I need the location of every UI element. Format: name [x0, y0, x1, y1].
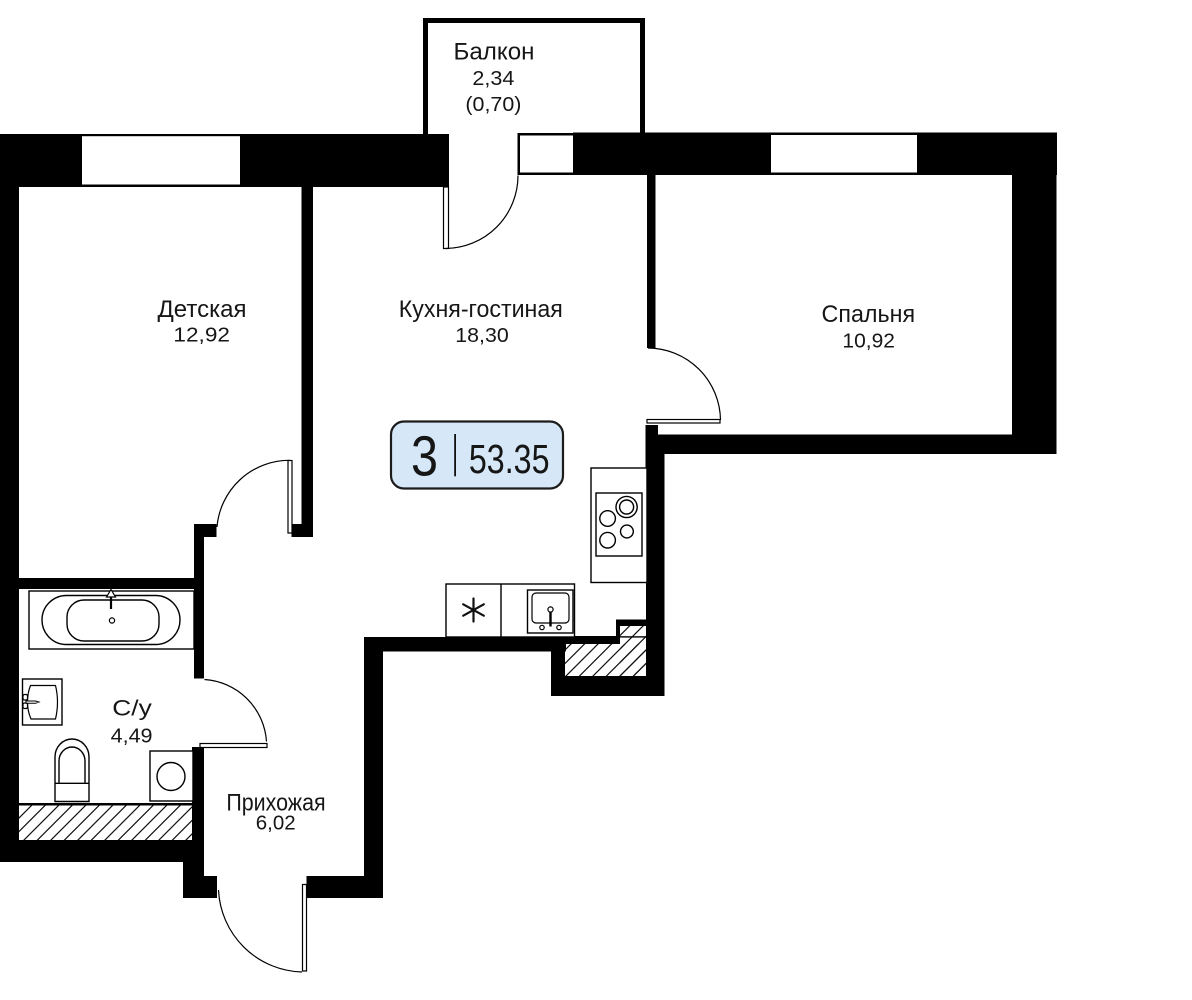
svg-text:6,02: 6,02: [256, 813, 296, 835]
svg-text:10,92: 10,92: [842, 331, 895, 353]
svg-text:(0,70): (0,70): [465, 94, 521, 116]
svg-text:С/у: С/у: [112, 696, 152, 721]
svg-text:Балкон: Балкон: [454, 39, 535, 66]
svg-text:2,34: 2,34: [472, 68, 514, 90]
svg-text:Кухня-гостиная: Кухня-гостиная: [399, 296, 563, 323]
svg-text:3: 3: [411, 424, 438, 488]
svg-text:12,92: 12,92: [173, 324, 230, 346]
svg-text:Спальня: Спальня: [822, 301, 916, 328]
svg-text:Детская: Детская: [158, 296, 247, 323]
svg-text:18,30: 18,30: [455, 325, 508, 347]
svg-text:53.35: 53.35: [469, 436, 550, 482]
svg-text:4,49: 4,49: [111, 726, 153, 748]
